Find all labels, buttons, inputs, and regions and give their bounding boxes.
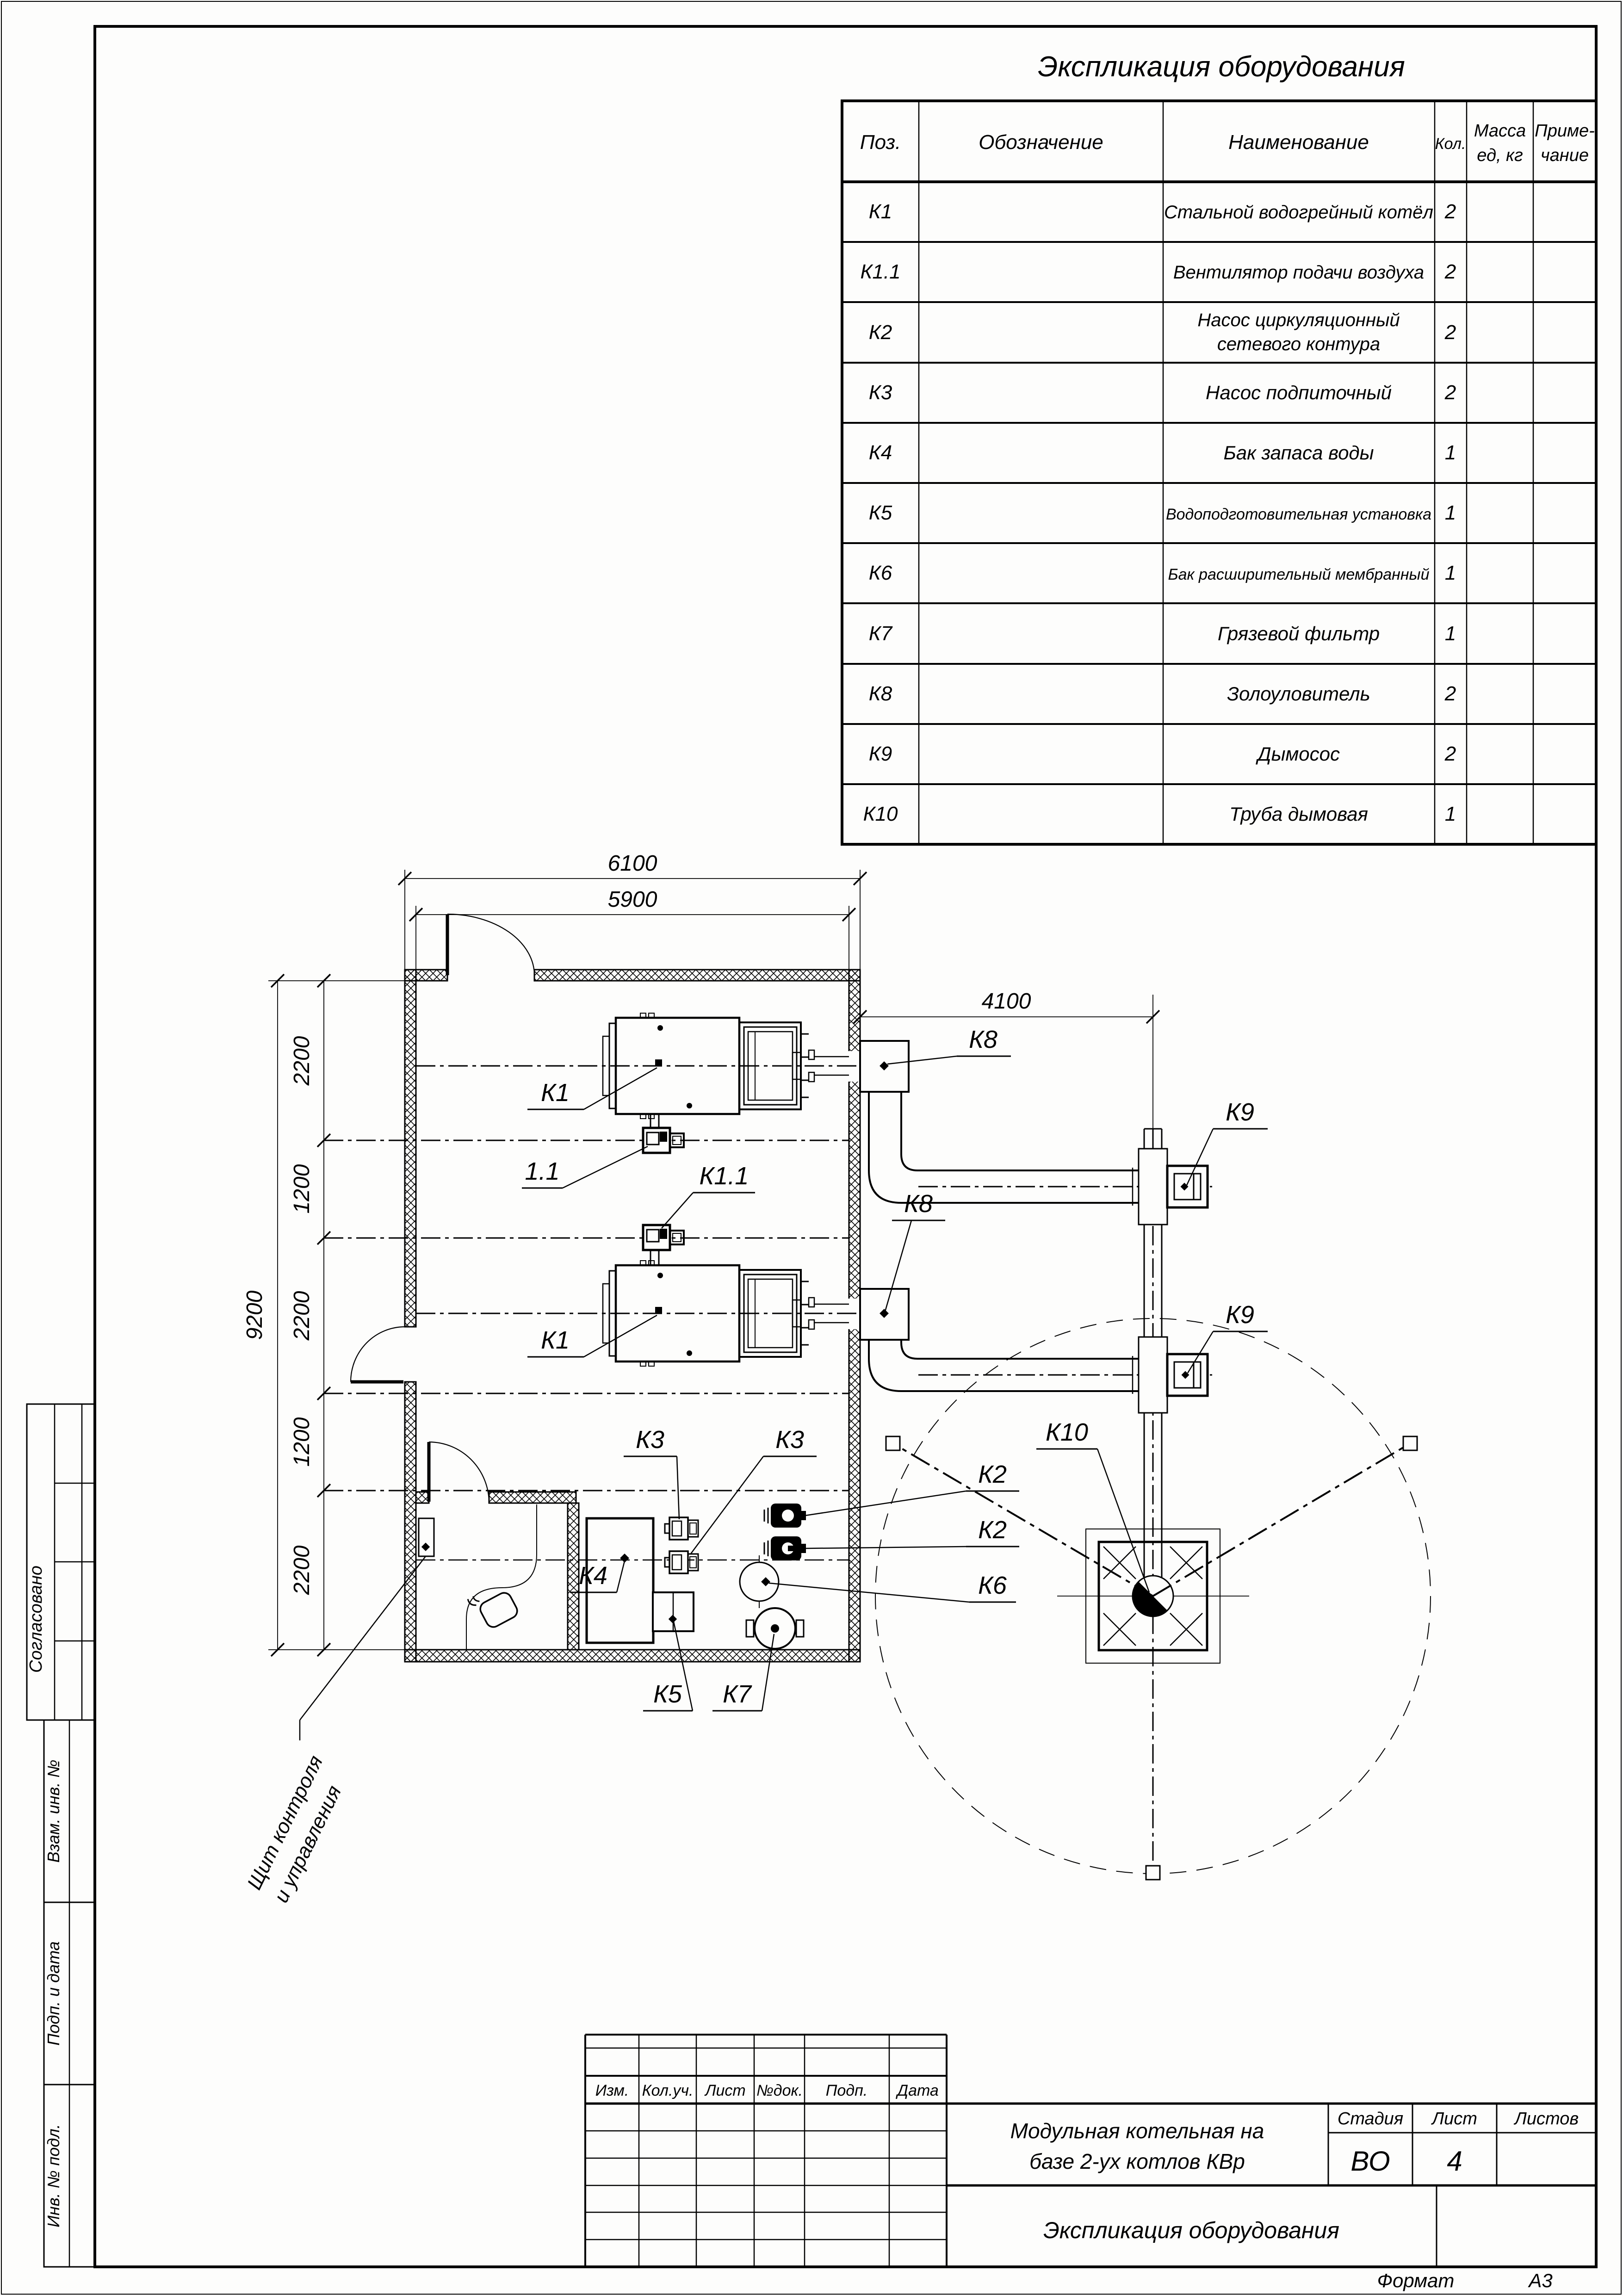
stamp-podp-data: Подп. и дата bbox=[44, 1941, 63, 2045]
drawing-canvas: Экспликация оборудования Поз. Обозначени… bbox=[0, 0, 1623, 2296]
col-pos: Поз. bbox=[860, 131, 901, 154]
equipment-table: Экспликация оборудования Поз. Обозначени… bbox=[842, 51, 1596, 844]
stage-label: Стадия bbox=[1338, 2109, 1403, 2129]
table-row: К1 Стальной водогрейный котёл 2 bbox=[869, 200, 1456, 223]
label-k3-2: К3 bbox=[775, 1426, 804, 1454]
row-pos: К1.1 bbox=[860, 260, 900, 283]
pump-k3-1 bbox=[665, 1517, 698, 1540]
dim-6100: 6100 bbox=[608, 851, 657, 876]
pump-k3-2 bbox=[665, 1551, 698, 1573]
row-pos: К8 bbox=[869, 682, 892, 705]
table-row: К6 Бак расширительный мембранный 1 bbox=[869, 562, 1456, 584]
label-k8-bottom: К8 bbox=[904, 1190, 933, 1218]
table-row: К2 Насос циркуляционный сетевого контура… bbox=[869, 310, 1456, 354]
door-vestibule bbox=[429, 1442, 489, 1503]
row-qty: 2 bbox=[1444, 381, 1456, 404]
col-name: Наименование bbox=[1228, 131, 1369, 154]
dim-seg-3: 2200 bbox=[290, 1291, 314, 1341]
sheet-value: 4 bbox=[1447, 2146, 1462, 2177]
table-row: К9 Дымосос 2 bbox=[869, 743, 1456, 765]
row-name: Дымосос bbox=[1256, 743, 1340, 765]
row-name: Грязевой фильтр bbox=[1218, 623, 1380, 644]
col-mass-2: ед, кг bbox=[1477, 146, 1523, 165]
stamp-vzam: Взам. инв. № bbox=[44, 1760, 63, 1863]
dim-9200: 9200 bbox=[242, 1290, 267, 1340]
row-pos: К7 bbox=[869, 622, 893, 645]
row-name2: сетевого контура bbox=[1217, 334, 1380, 354]
row-name: Бак запаса воды bbox=[1223, 442, 1374, 464]
label-k2-1: К2 bbox=[978, 1461, 1007, 1488]
row-name: Бак расширительный мембранный bbox=[1168, 566, 1430, 583]
row-name: Насос подпиточный bbox=[1206, 382, 1392, 403]
label-k4: К4 bbox=[579, 1562, 607, 1590]
row-pos: К2 bbox=[869, 321, 892, 344]
format-value: А3 bbox=[1527, 2270, 1552, 2291]
row-qty: 2 bbox=[1444, 321, 1456, 344]
label-k9-top: К9 bbox=[1226, 1098, 1254, 1126]
rev-koluch: Кол.уч. bbox=[642, 2082, 694, 2099]
rev-ndok: №док. bbox=[756, 2082, 803, 2099]
label-k11: К1.1 bbox=[700, 1162, 749, 1190]
row-name: Труба дымовая bbox=[1229, 803, 1368, 825]
smoke-exhauster-k9-bottom bbox=[1167, 1354, 1208, 1396]
row-qty: 2 bbox=[1444, 260, 1456, 283]
row-qty: 1 bbox=[1445, 562, 1456, 584]
row-pos: К3 bbox=[869, 381, 892, 404]
row-qty: 2 bbox=[1444, 200, 1456, 223]
table-row: К1.1 Вентилятор подачи воздуха 2 bbox=[860, 260, 1456, 283]
label-k5: К5 bbox=[653, 1680, 682, 1708]
row-pos: К6 bbox=[869, 562, 892, 584]
door-main-entrance bbox=[447, 914, 534, 975]
drawing-sheet: Экспликация оборудования Поз. Обозначени… bbox=[0, 0, 1623, 2296]
row-qty: 1 bbox=[1445, 501, 1456, 524]
label-k6: К6 bbox=[978, 1572, 1007, 1599]
row-qty: 2 bbox=[1444, 743, 1456, 765]
label-k2-2: К2 bbox=[978, 1516, 1007, 1544]
rev-izm: Изм. bbox=[595, 2082, 629, 2099]
col-note-2: чание bbox=[1541, 146, 1589, 165]
label-k1-bottom: К1 bbox=[541, 1326, 570, 1354]
row-qty: 1 bbox=[1445, 803, 1456, 825]
col-designation: Обозначение bbox=[979, 131, 1103, 154]
side-stamps: Согласовано Взам. инв. № Подп. и дата Ин… bbox=[26, 1404, 95, 2267]
table-row: К10 Труба дымовая 1 bbox=[863, 803, 1456, 825]
dim-seg-5: 2200 bbox=[290, 1545, 314, 1595]
dim-4100: 4100 bbox=[982, 989, 1031, 1014]
rev-list: Лист bbox=[704, 2082, 746, 2099]
row-name: Водоподготовительная установка bbox=[1166, 506, 1431, 523]
label-k1-top: К1 bbox=[541, 1079, 570, 1107]
sheet-label: Лист bbox=[1431, 2109, 1477, 2129]
rev-data: Дата bbox=[895, 2082, 939, 2099]
row-pos: К4 bbox=[869, 441, 892, 464]
row-qty: 2 bbox=[1444, 682, 1456, 705]
pump-k2-1 bbox=[764, 1504, 806, 1528]
row-pos: К1 bbox=[869, 200, 892, 223]
dim-seg-4: 1200 bbox=[290, 1417, 314, 1467]
floor-plan: Щит контроля и управления 6100 5900 4100 bbox=[242, 851, 1431, 1906]
stage-value: ВО bbox=[1350, 2146, 1390, 2177]
col-note-1: Приме- bbox=[1535, 121, 1595, 141]
ash-catcher-k8-bottom bbox=[860, 1289, 1139, 1394]
row-pos: К10 bbox=[863, 803, 898, 825]
fan-k11-top bbox=[643, 1114, 684, 1153]
rev-podp: Подп. bbox=[826, 2082, 868, 2099]
label-k9-bottom: К9 bbox=[1226, 1301, 1254, 1329]
table-row: К8 Золоуловитель 2 bbox=[869, 682, 1456, 705]
pump-k2-2 bbox=[764, 1536, 806, 1560]
table-row: К3 Насос подпиточный 2 bbox=[869, 381, 1456, 404]
col-mass-1: Масса bbox=[1474, 121, 1526, 141]
label-k8-top: К8 bbox=[969, 1026, 997, 1053]
dim-seg-2: 1200 bbox=[290, 1164, 314, 1213]
mud-filter-k7 bbox=[746, 1608, 804, 1649]
stamp-inv-podl: Инв. № подл. bbox=[44, 2124, 63, 2227]
col-qty: Кол. bbox=[1435, 135, 1466, 153]
axes bbox=[324, 1066, 1212, 1873]
dim-5900: 5900 bbox=[608, 887, 657, 912]
dim-seg-1: 2200 bbox=[290, 1036, 314, 1086]
expansion-tank-k6 bbox=[740, 1555, 779, 1608]
row-name: Вентилятор подачи воздуха bbox=[1173, 262, 1424, 283]
label-k10: К10 bbox=[1046, 1418, 1088, 1446]
row-qty: 1 bbox=[1445, 441, 1456, 464]
row-name: Стальной водогрейный котёл bbox=[1164, 202, 1433, 223]
ash-catcher-k8-top bbox=[860, 1041, 1139, 1206]
smoke-exhauster-k9-top bbox=[1167, 1166, 1208, 1207]
table-row: К7 Грязевой фильтр 1 bbox=[869, 622, 1456, 645]
row-name: Золоуловитель bbox=[1227, 683, 1370, 705]
table-row: К5 Водоподготовительная установка 1 bbox=[869, 501, 1456, 524]
door-side bbox=[351, 1327, 405, 1382]
label-11: 1.1 bbox=[525, 1157, 559, 1185]
row-pos: К5 bbox=[869, 501, 892, 524]
title-block: Изм. Кол.уч. Лист №док. Подп. Дата Стади… bbox=[585, 2035, 1596, 2291]
project-title-1: Модульная котельная на bbox=[1010, 2119, 1264, 2143]
stamp-agreed: Согласовано bbox=[26, 1566, 46, 1673]
sink bbox=[466, 1504, 537, 1650]
table-row: К4 Бак запаса воды 1 bbox=[869, 441, 1456, 464]
water-treatment-k5 bbox=[653, 1592, 694, 1631]
label-k3-1: К3 bbox=[636, 1426, 664, 1454]
label-k7: К7 bbox=[723, 1680, 752, 1708]
equipment-table-title: Экспликация оборудования bbox=[1038, 51, 1405, 83]
format-label: Формат bbox=[1377, 2270, 1455, 2291]
sheets-label: Листов bbox=[1513, 2109, 1579, 2129]
row-qty: 1 bbox=[1445, 622, 1456, 645]
doc-title: Экспликация оборудования bbox=[1043, 2217, 1339, 2243]
fan-k11-bottom bbox=[643, 1225, 684, 1265]
row-pos: К9 bbox=[869, 743, 892, 765]
row-name: Насос циркуляционный bbox=[1197, 310, 1400, 330]
project-title-2: базе 2-ух котлов КВр bbox=[1029, 2149, 1245, 2173]
